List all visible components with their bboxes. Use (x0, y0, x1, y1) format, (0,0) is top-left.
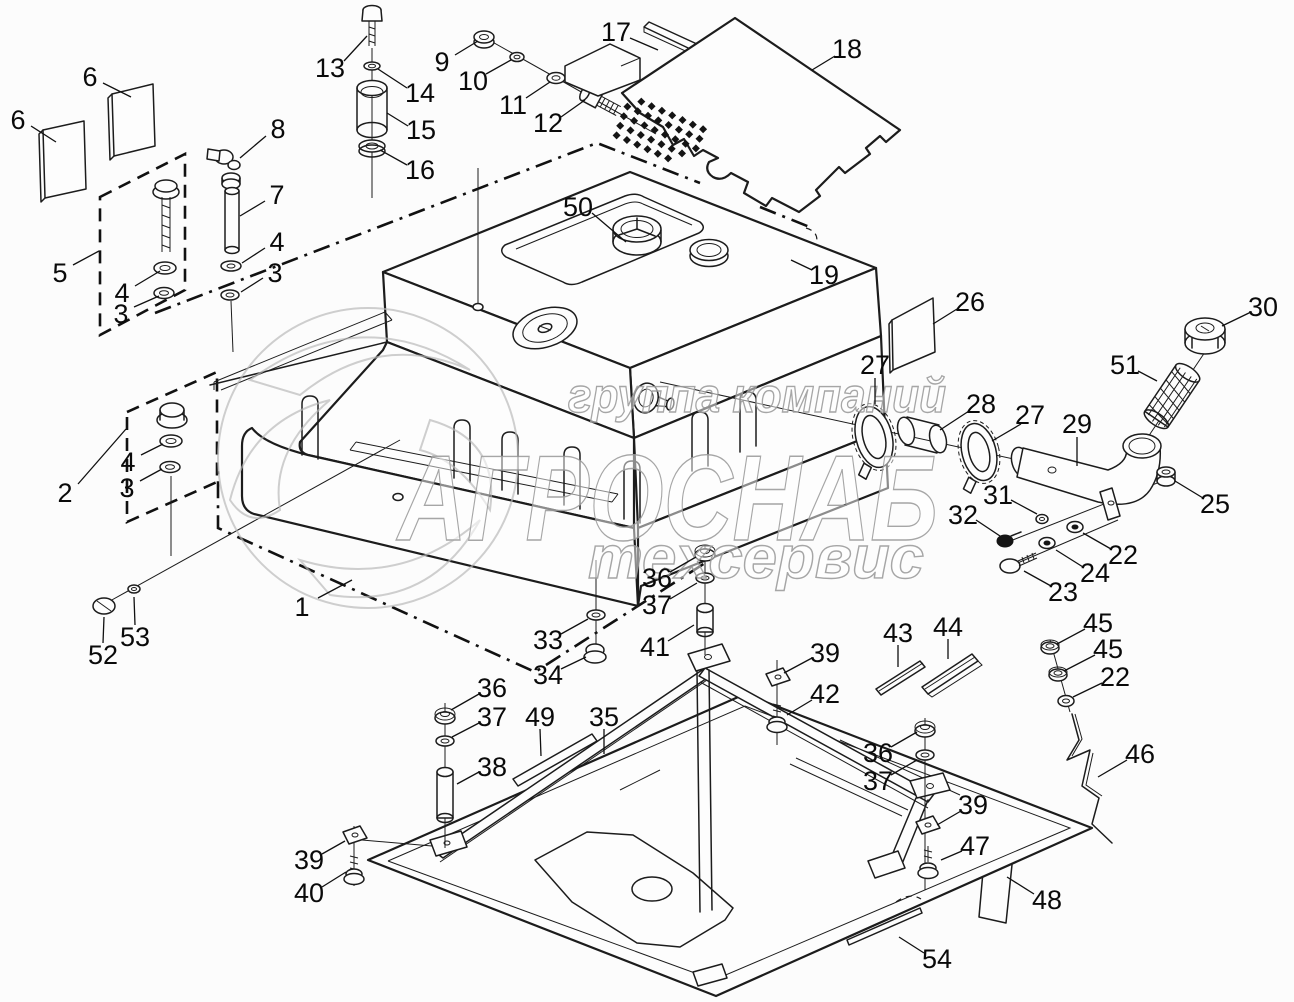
leader-line-7 (240, 201, 265, 216)
leader-line-49 (540, 729, 541, 756)
leader-line-54 (899, 937, 924, 953)
callout-12: 12 (533, 108, 563, 138)
callout-46: 46 (1125, 739, 1155, 769)
breather-valve-8 (207, 149, 240, 189)
callout-3: 3 (113, 299, 128, 329)
watermark-line3: техсервис (588, 524, 924, 591)
leader-line-8 (240, 136, 266, 158)
leader-line-38 (457, 772, 479, 784)
leader-line-22 (1083, 533, 1111, 549)
leader-line-4 (242, 248, 265, 263)
leader-line-37 (452, 723, 479, 737)
callout-19: 19 (809, 260, 839, 290)
leader-line-4 (141, 444, 163, 455)
callout-7: 7 (269, 180, 284, 210)
plug-kit-2 (157, 403, 187, 556)
perforation-hole (623, 103, 631, 111)
perforation-hole (623, 136, 631, 144)
leader-line-48 (1007, 877, 1034, 894)
perforation-hole (664, 154, 672, 162)
callout-9: 9 (434, 47, 449, 77)
callout-36: 36 (642, 563, 672, 593)
callout-36: 36 (863, 738, 893, 768)
perforation-hole (633, 141, 641, 149)
leader-line-36 (451, 694, 479, 710)
leader-line-46 (1098, 760, 1127, 777)
perforation-hole (616, 122, 624, 130)
callout-28: 28 (966, 389, 996, 419)
leader-line-11 (526, 82, 550, 98)
leader-line-45 (1057, 629, 1085, 644)
leader-line-4 (135, 271, 160, 286)
callout-6: 6 (82, 62, 97, 92)
perforation-hole (668, 145, 676, 153)
callout-45: 45 (1093, 634, 1123, 664)
callout-39: 39 (958, 790, 988, 820)
perforation-hole (637, 131, 645, 139)
diagram-canvas: группа компаний АГРОСНАБ техсервис 66543… (0, 0, 1294, 1002)
parts-diagram-svg: группа компаний АГРОСНАБ техсервис 66543… (0, 0, 1294, 1002)
bolt-kit-5 (153, 180, 179, 299)
leader-line-39 (322, 841, 345, 854)
bolt-23 (1000, 553, 1037, 573)
callout-13: 13 (315, 53, 345, 83)
callout-47: 47 (960, 831, 990, 861)
callout-22: 22 (1108, 540, 1138, 570)
leader-line-34 (561, 657, 586, 669)
callout-42: 42 (810, 679, 840, 709)
callout-52: 52 (88, 640, 118, 670)
leader-line-31 (1011, 500, 1037, 514)
callout-38: 38 (477, 752, 507, 782)
callout-16: 16 (405, 155, 435, 185)
callout-22: 22 (1100, 662, 1130, 692)
callout-36: 36 (477, 673, 507, 703)
leader-line-24 (1056, 550, 1083, 567)
perforation-hole (654, 150, 662, 158)
callout-10: 10 (458, 66, 488, 96)
leader-line-3 (241, 278, 263, 292)
leader-line-42 (787, 700, 812, 715)
callout-37: 37 (863, 766, 893, 796)
leader-line-5 (73, 251, 99, 265)
callout-53: 53 (120, 622, 150, 652)
perforation-hole (627, 126, 635, 134)
callout-43: 43 (883, 618, 913, 648)
callout-17: 17 (601, 17, 631, 47)
callout-33: 33 (533, 625, 563, 655)
callout-37: 37 (477, 702, 507, 732)
leader-line-13 (344, 36, 367, 61)
callout-48: 48 (1032, 885, 1062, 915)
callout-3: 3 (267, 258, 282, 288)
perforation-hole (620, 112, 628, 120)
leader-line-12 (561, 100, 585, 117)
perforation-hole (613, 131, 621, 139)
leader-line-30 (1222, 312, 1251, 326)
leader-line-40 (322, 872, 346, 887)
leader-line-26 (933, 309, 957, 324)
callout-18: 18 (832, 34, 862, 64)
callout-29: 29 (1062, 409, 1092, 439)
callout-41: 41 (640, 632, 670, 662)
callout-51: 51 (1110, 350, 1140, 380)
callout-39: 39 (810, 638, 840, 668)
perforation-hole (657, 140, 665, 148)
callout-32: 32 (948, 500, 978, 530)
callout-54: 54 (922, 944, 952, 974)
callout-3: 3 (119, 473, 134, 503)
perforation-hole (647, 136, 655, 144)
callout-27: 27 (860, 350, 890, 380)
leader-line-23 (1024, 571, 1051, 586)
callout-15: 15 (406, 115, 436, 145)
callout-25: 25 (1200, 489, 1230, 519)
callout-34: 34 (533, 660, 563, 690)
bolt-13-stack (357, 6, 387, 199)
callout-39: 39 (294, 845, 324, 875)
fuel-cap-30 (1185, 318, 1225, 354)
callout-49: 49 (525, 702, 555, 732)
pad-6a (108, 84, 155, 160)
filler-cap-50 (613, 216, 661, 255)
leader-line-41 (668, 625, 694, 641)
callout-44: 44 (933, 612, 963, 642)
callout-6: 6 (10, 105, 25, 135)
callout-27: 27 (1015, 400, 1045, 430)
leader-line-53 (134, 597, 135, 625)
callout-11: 11 (499, 90, 527, 120)
leader-line-22 (1073, 683, 1102, 697)
leader-line-10 (486, 60, 511, 74)
leader-line-51 (1138, 371, 1157, 381)
callout-31: 31 (983, 480, 1013, 510)
leader-line-17 (630, 38, 658, 50)
bolt-32 (997, 532, 1021, 547)
callout-50: 50 (563, 192, 593, 222)
leader-line-45 (1064, 655, 1095, 671)
perforation-hole (651, 126, 659, 134)
callout-14: 14 (405, 78, 435, 108)
leader-line-16 (380, 150, 407, 165)
tank-opening (690, 240, 728, 267)
leader-line-32 (976, 520, 1000, 536)
suction-tube-7 (221, 188, 241, 353)
leader-line-39 (784, 658, 812, 673)
perforation-hole (640, 121, 648, 129)
strainer-51 (1141, 360, 1202, 432)
perforation-hole (678, 149, 686, 157)
nut-25 (1157, 467, 1175, 486)
callout-37: 37 (642, 590, 672, 620)
leader-line-9 (455, 41, 478, 55)
callout-4: 4 (269, 227, 284, 257)
leader-line-25 (1175, 481, 1203, 498)
callout-35: 35 (589, 702, 619, 732)
callout-24: 24 (1080, 558, 1110, 588)
callout-30: 30 (1248, 292, 1278, 322)
perforation-hole (644, 145, 652, 153)
pad-26 (889, 298, 935, 373)
callout-5: 5 (52, 258, 67, 288)
filler-tube-29 (1008, 434, 1161, 520)
leader-line-33 (561, 619, 588, 634)
callout-8: 8 (270, 114, 285, 144)
leader-line-15 (387, 113, 408, 126)
leader-line-3 (140, 469, 162, 481)
callout-26: 26 (955, 287, 985, 317)
leader-line-36 (891, 732, 917, 747)
callout-23: 23 (1048, 577, 1078, 607)
callout-40: 40 (294, 878, 324, 908)
callout-1: 1 (294, 592, 309, 622)
pad-6b (39, 121, 86, 202)
callout-2: 2 (57, 478, 72, 508)
